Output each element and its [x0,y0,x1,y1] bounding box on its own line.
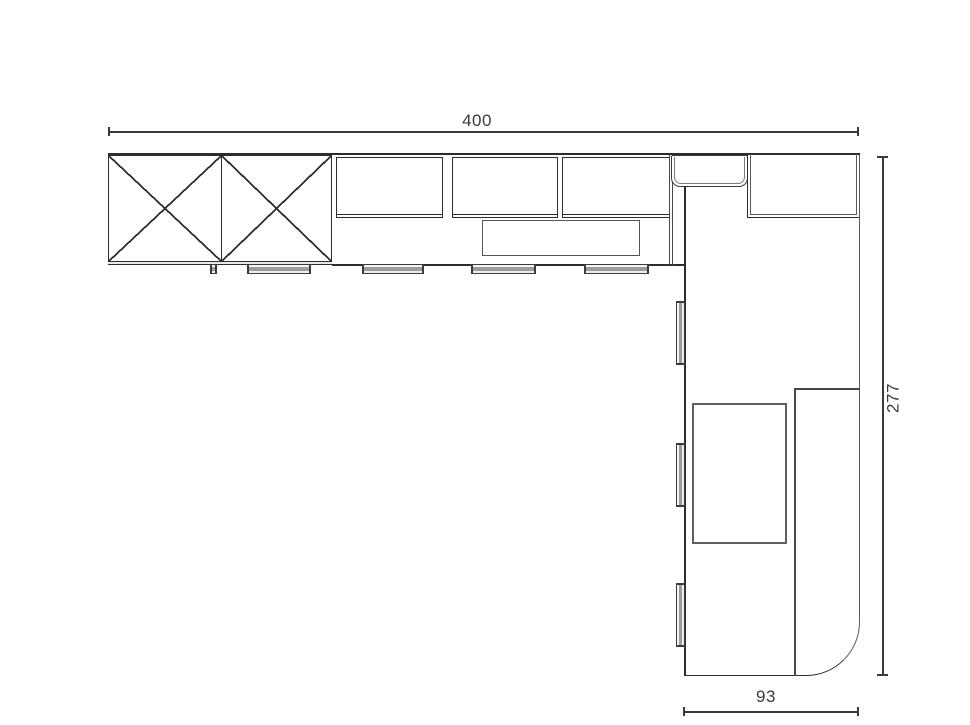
door-handle-knob [210,264,217,274]
door-handle-v2 [676,443,685,507]
dim-bottom-line [683,711,859,713]
door-handle-h1 [247,264,311,274]
dim-bottom-tick-right [857,707,859,716]
wall-cabinet-1 [336,157,443,218]
dim-top-tick-left [108,127,110,136]
dim-bottom-label: 93 [736,687,796,706]
wall-cabinet-2-front-edge [452,214,558,215]
worktop-recess [482,220,640,256]
door-handle-v1 [676,301,685,365]
cooktop [692,403,787,544]
vertical-run-divider-h [794,388,860,390]
door-handle-h4 [584,264,649,274]
dim-top-line [108,131,858,133]
vertical-run-divider-v [794,388,796,676]
door-handle-h3 [471,264,536,274]
wall-cabinet-2 [452,157,558,218]
wall-cabinet-3 [562,157,670,218]
wall-cabinet-3-front-edge [562,214,670,215]
wall-cabinet-1-front-edge [336,214,443,215]
tall-unit-right-x [221,155,332,262]
tall-unit-left-x [108,155,222,262]
dim-right-tick-top [877,156,888,158]
door-handle-h2 [362,264,424,274]
dim-bottom-tick-left [683,707,685,716]
dim-top-tick-right [857,127,859,136]
dim-right-tick-bottom [877,674,888,676]
dim-top-label: 400 [447,111,507,130]
dim-right-label: 277 [884,380,902,417]
door-handle-v3 [676,583,685,647]
floor-plan-canvas: 400 277 93 [0,0,970,725]
